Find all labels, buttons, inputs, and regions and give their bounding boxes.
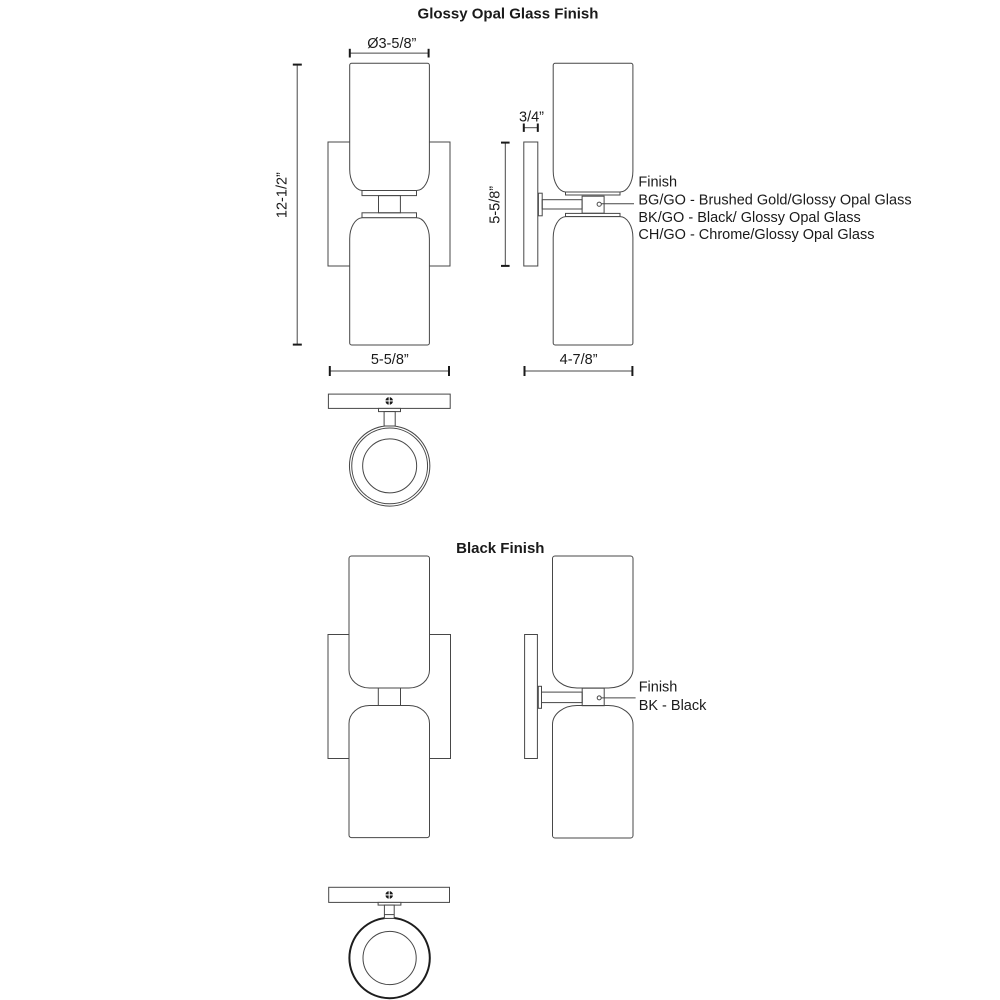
- svg-text:BK - Black: BK - Black: [639, 698, 707, 714]
- svg-text:Finish: Finish: [639, 680, 678, 696]
- svg-text:4-7/8”: 4-7/8”: [560, 352, 598, 368]
- svg-text:12-1/2”: 12-1/2”: [275, 172, 291, 218]
- svg-text:3/4”: 3/4”: [519, 110, 544, 126]
- svg-text:BK/GO - Black/ Glossy Opal Gla: BK/GO - Black/ Glossy Opal Glass: [638, 210, 860, 226]
- svg-text:Glossy Opal Glass Finish: Glossy Opal Glass Finish: [418, 6, 599, 23]
- svg-text:5-5/8”: 5-5/8”: [371, 352, 409, 368]
- svg-text:BG/GO - Brushed Gold/Glossy Op: BG/GO - Brushed Gold/Glossy Opal Glass: [638, 193, 911, 209]
- svg-text:Black Finish: Black Finish: [456, 540, 544, 557]
- svg-text:CH/GO - Chrome/Glossy Opal Gla: CH/GO - Chrome/Glossy Opal Glass: [638, 227, 874, 243]
- svg-text:Ø3-5/8”: Ø3-5/8”: [367, 36, 416, 52]
- svg-text:5-5/8”: 5-5/8”: [488, 186, 504, 224]
- svg-text:Finish: Finish: [638, 175, 677, 191]
